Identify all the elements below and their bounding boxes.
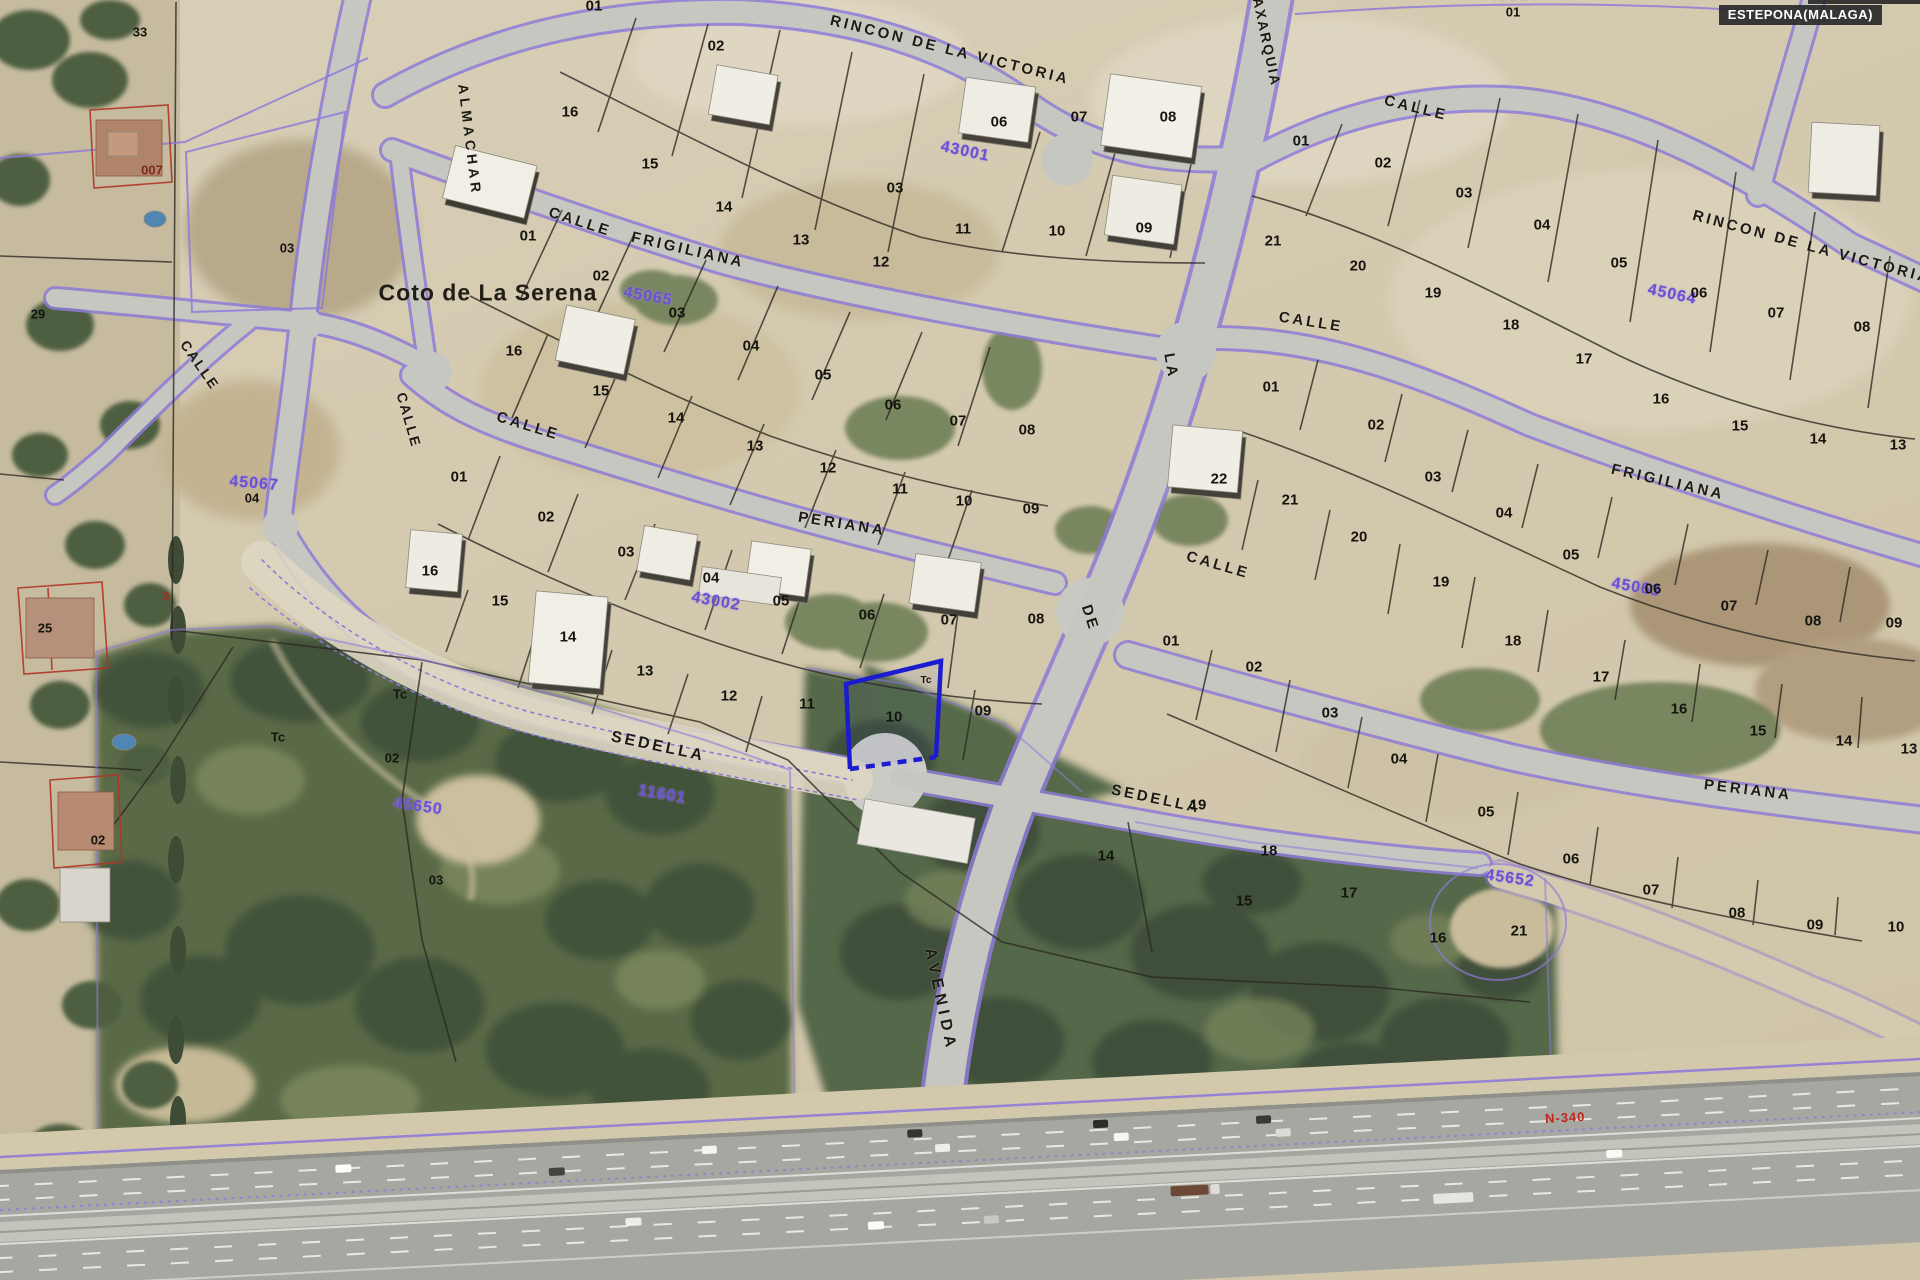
parcel-number: 16 — [1671, 702, 1688, 717]
parcel-number: 01 — [451, 470, 468, 485]
map-annotation: 3 — [163, 590, 170, 602]
parcel-number: 05 — [1563, 548, 1580, 563]
map-annotation: 33 — [133, 26, 147, 39]
highway-ref-label: N-340 — [1545, 1109, 1586, 1126]
parcel-number: 15 — [1750, 724, 1767, 739]
parcel-number: 18 — [1505, 634, 1522, 649]
parcel-number: 21 — [1265, 234, 1282, 249]
parcel-number: 11 — [955, 222, 971, 237]
parcel-number: 03 — [887, 181, 904, 196]
parcel-number: 09 — [1886, 616, 1903, 631]
cadastral-map-view[interactable]: RINCON DE LA VICTORIAALMACHARCALLEFRIGIL… — [0, 0, 1920, 1280]
municipality-label: ESTEPONA(MALAGA) — [1719, 5, 1882, 25]
parcel-number: 15 — [492, 594, 509, 609]
map-annotation: 29 — [31, 308, 45, 321]
parcel-number: 09 — [1023, 502, 1040, 517]
map-annotation: 25 — [38, 622, 52, 635]
parcel-number: 06 — [885, 398, 902, 413]
parcel-number: 06 — [1645, 582, 1662, 597]
parcel-number: 10 — [1049, 224, 1066, 239]
parcel-number: 07 — [950, 414, 967, 429]
parcel-number: 16 — [506, 344, 523, 359]
parcel-number: 07 — [1721, 599, 1738, 614]
parcel-number: 02 — [1375, 156, 1392, 171]
parcel-number: 13 — [1890, 438, 1907, 453]
parcel-number: 02 — [1246, 660, 1263, 675]
parcel-number: 10 — [886, 710, 903, 725]
parcel-number: 02 — [538, 510, 555, 525]
parcel-number: 19 — [1425, 286, 1442, 301]
parcel-number: 16 — [1430, 931, 1447, 946]
parcel-number: 16 — [1653, 392, 1670, 407]
parcel-number: 13 — [793, 233, 810, 248]
parcel-number: 17 — [1593, 670, 1610, 685]
parcel-number: 13 — [747, 439, 764, 454]
map-graphics — [0, 0, 1920, 1280]
map-annotation: 03 — [280, 242, 294, 255]
parcel-number: 18 — [1503, 318, 1520, 333]
parcel-number: 09 — [1807, 918, 1824, 933]
parcel-number: 15 — [593, 384, 610, 399]
parcel-number: 14 — [668, 411, 685, 426]
parcel-number: 07 — [1071, 110, 1088, 125]
parcel-number: 03 — [1456, 186, 1473, 201]
parcel-number: 14 — [560, 630, 577, 645]
parcel-number: 01 — [586, 0, 603, 14]
parcel-number: 15 — [642, 157, 659, 172]
parcel-number: 11 — [799, 697, 815, 712]
municipality-box-sliver — [1808, 0, 1920, 4]
parcel-number: 08 — [1028, 612, 1045, 627]
parcel-number: 13 — [637, 664, 654, 679]
parcel-number: 08 — [1729, 906, 1746, 921]
street-name-label: LA — [1161, 352, 1180, 380]
map-annotation: 02 — [91, 834, 105, 847]
parcel-number: 20 — [1351, 530, 1368, 545]
area-code-label: 45064 — [1488, 0, 1538, 4]
parcel-number: 02 — [708, 39, 725, 54]
parcel-number: 16 — [562, 105, 579, 120]
parcel-number: 11 — [892, 482, 908, 497]
parcel-number: 02 — [1368, 418, 1385, 433]
parcel-number: 21 — [1511, 924, 1528, 939]
map-annotation: 007 — [141, 164, 163, 177]
map-annotation: 01 — [1506, 6, 1520, 19]
parcel-number: 12 — [873, 255, 890, 270]
parcel-number: 01 — [1163, 634, 1180, 649]
parcel-number: 08 — [1019, 423, 1036, 438]
parcel-number: 06 — [1691, 286, 1708, 301]
parcel-number: 08 — [1854, 320, 1871, 335]
parcel-number: 13 — [1901, 742, 1918, 757]
parcel-number: 18 — [1261, 844, 1278, 859]
parcel-number: 19 — [1433, 575, 1450, 590]
parcel-number: 06 — [1563, 852, 1580, 867]
parcel-number: 04 — [703, 571, 720, 586]
parcel-number: 07 — [1768, 306, 1785, 321]
map-annotation: Tc — [271, 731, 285, 744]
parcel-number: 06 — [859, 608, 876, 623]
parcel-number: 08 — [1805, 614, 1822, 629]
parcel-number: 01 — [520, 229, 537, 244]
parcel-number: 17 — [1341, 886, 1358, 901]
parcel-number: 07 — [941, 613, 958, 628]
parcel-number: 08 — [1160, 110, 1177, 125]
parcel-number: 21 — [1282, 493, 1299, 508]
parcel-number: 03 — [1322, 706, 1339, 721]
parcel-number: 04 — [1496, 506, 1513, 521]
parcel-number: 12 — [721, 689, 738, 704]
parcel-number: 07 — [1643, 883, 1660, 898]
parcel-number: 17 — [1576, 352, 1593, 367]
place-name-label: Coto de La Serena — [379, 282, 598, 305]
parcel-number: 09 — [1136, 221, 1153, 236]
parcel-number: 12 — [820, 461, 837, 476]
map-annotation: Tc — [921, 676, 932, 686]
parcel-number: 06 — [991, 115, 1008, 130]
parcel-number: 01 — [1263, 380, 1280, 395]
parcel-number: 05 — [773, 594, 790, 609]
map-annotation: 03 — [429, 874, 443, 887]
parcel-number: 15 — [1236, 894, 1253, 909]
map-annotation: 02 — [385, 752, 399, 765]
parcel-number: 14 — [1098, 849, 1115, 864]
parcel-number: 04 — [1391, 752, 1408, 767]
parcel-number: 10 — [1888, 920, 1905, 935]
parcel-number: 16 — [422, 564, 439, 579]
parcel-number: 01 — [1293, 134, 1310, 149]
parcel-number: 20 — [1350, 259, 1367, 274]
parcel-number: 14 — [1836, 734, 1853, 749]
parcel-number: 09 — [975, 704, 992, 719]
parcel-number: 04 — [743, 339, 760, 354]
parcel-number: 19 — [1190, 798, 1207, 813]
parcel-number: 10 — [956, 494, 973, 509]
parcel-number: 04 — [1534, 218, 1551, 233]
parcel-number: 22 — [1211, 472, 1228, 487]
parcel-number: 14 — [1810, 432, 1827, 447]
map-annotation: Tc — [393, 688, 407, 701]
parcel-number: 03 — [1425, 470, 1442, 485]
parcel-number: 05 — [1611, 256, 1628, 271]
parcel-number: 03 — [669, 306, 686, 321]
parcel-number: 15 — [1732, 419, 1749, 434]
parcel-number: 14 — [716, 200, 733, 215]
parcel-number: 05 — [1478, 805, 1495, 820]
parcel-number: 05 — [815, 368, 832, 383]
map-annotation: 04 — [245, 492, 259, 505]
parcel-number: 03 — [618, 545, 635, 560]
